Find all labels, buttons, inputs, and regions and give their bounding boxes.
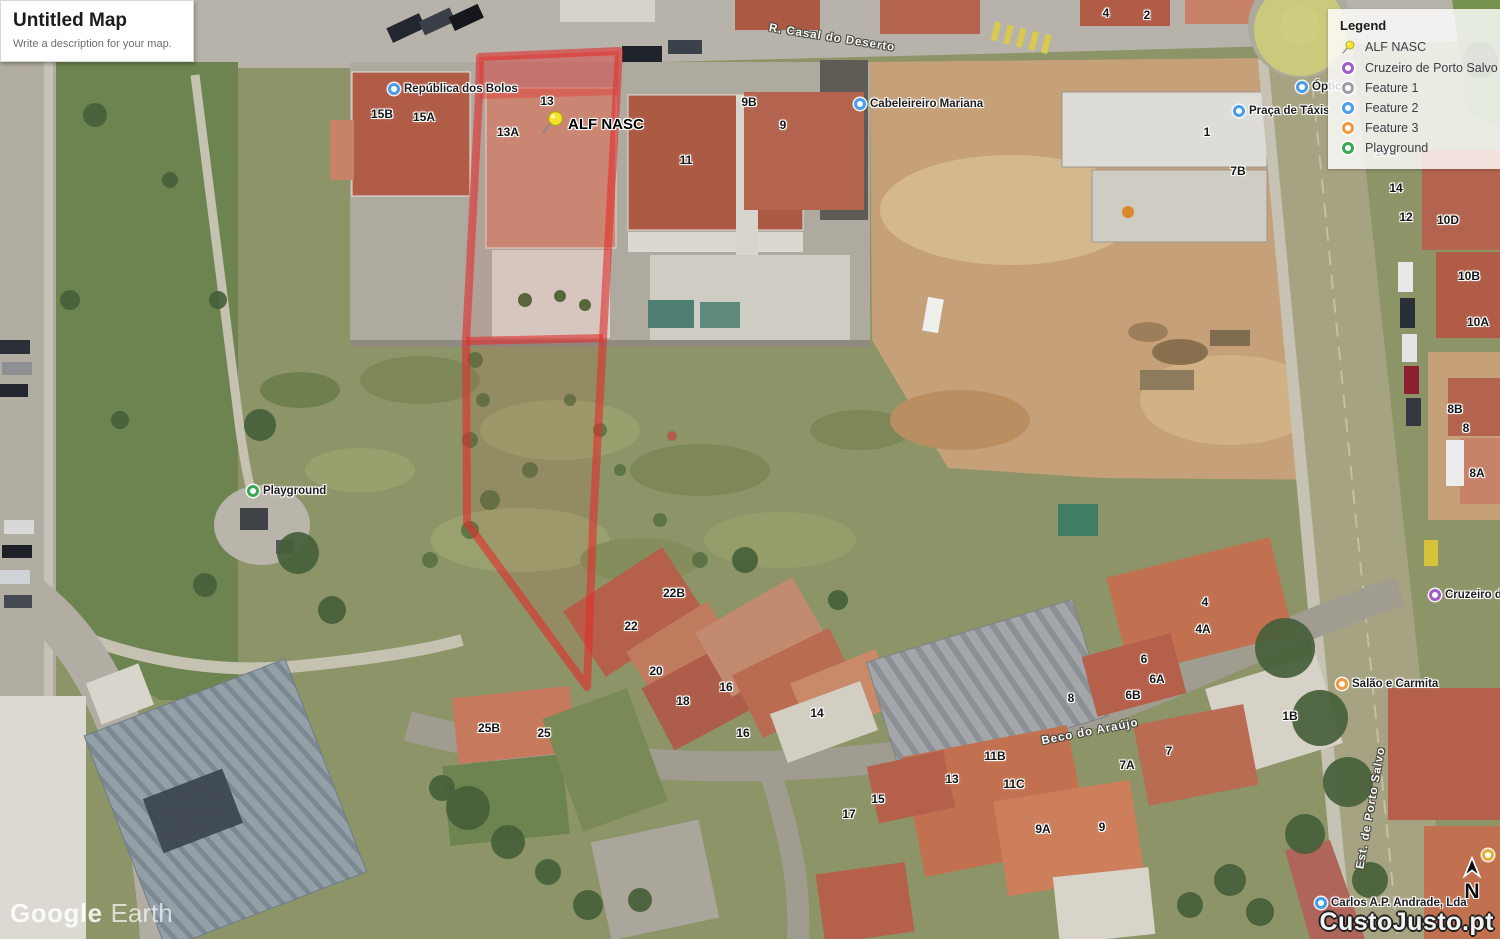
circle-marker-icon	[1340, 102, 1356, 114]
legend-item-label: Feature 1	[1365, 81, 1419, 95]
circle-marker-icon	[1340, 82, 1356, 94]
legend-item-feature-1[interactable]: Feature 1	[1340, 81, 1496, 95]
legend-item-playground[interactable]: Playground	[1340, 141, 1496, 155]
satellite-background	[0, 0, 1500, 939]
circle-marker-icon	[1340, 62, 1356, 74]
map-title[interactable]: Untitled Map	[13, 10, 181, 32]
circle-marker-icon	[1340, 142, 1356, 154]
legend-item-label: Cruzeiro de Porto Salvo	[1365, 61, 1498, 75]
legend-item-label: Feature 2	[1365, 101, 1419, 115]
legend-item-label: ALF NASC	[1365, 40, 1426, 54]
map-canvas[interactable]: 1313A15B15A119B94217B14A141210D10B10A8B8…	[0, 0, 1500, 939]
placemark-label: ALF NASC	[568, 116, 644, 133]
google-logo-text: Google	[10, 898, 103, 928]
earth-logo-text: Earth	[111, 898, 173, 928]
north-arrow-icon	[1459, 856, 1485, 878]
legend-item-label: Feature 3	[1365, 121, 1419, 135]
pushpin-icon	[1340, 39, 1356, 55]
google-earth-watermark: GoogleEarth	[10, 898, 173, 929]
legend-header: Legend	[1340, 18, 1496, 33]
north-arrow: N	[1452, 856, 1492, 902]
custojusto-watermark: CustoJusto.pt	[1319, 908, 1494, 937]
map-title-card[interactable]: Untitled Map Write a description for you…	[0, 0, 194, 62]
legend-panel: Legend ALF NASCCruzeiro de Porto SalvoFe…	[1328, 9, 1500, 169]
legend-item-label: Playground	[1365, 141, 1428, 155]
placemark-alf-nasc[interactable]: ALF NASC	[538, 108, 644, 141]
legend-item-feature-3[interactable]: Feature 3	[1340, 121, 1496, 135]
map-description[interactable]: Write a description for your map.	[13, 38, 181, 50]
north-label: N	[1452, 883, 1492, 902]
pushpin-icon[interactable]	[538, 108, 566, 141]
legend-item-alf-nasc[interactable]: ALF NASC	[1340, 39, 1496, 55]
circle-marker-icon	[1340, 122, 1356, 134]
legend-item-feature-2[interactable]: Feature 2	[1340, 101, 1496, 115]
legend-item-cruzeiro-de-porto-salvo[interactable]: Cruzeiro de Porto Salvo	[1340, 61, 1496, 75]
